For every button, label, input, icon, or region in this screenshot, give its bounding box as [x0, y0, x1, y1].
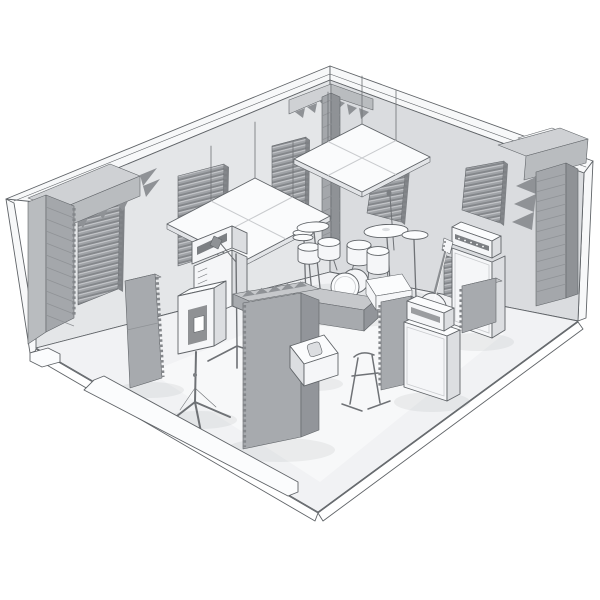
ride-bell [382, 228, 390, 231]
trap-column-side [566, 163, 578, 298]
floor-tom-head [367, 247, 389, 256]
crash-cymbal-2 [402, 231, 428, 240]
speaker-side [214, 281, 226, 346]
pole-knob [193, 373, 197, 377]
rehearsal-room-render: Isometric cutaway 3D render of a soundpr… [0, 0, 600, 600]
snare-head [298, 243, 320, 251]
trap-column-face [536, 163, 566, 306]
cab-front [404, 322, 447, 401]
trap-column-front [28, 195, 46, 344]
gobo-front [125, 274, 162, 388]
rack-tom-2-head [347, 240, 371, 250]
speaker-port [194, 316, 204, 333]
trap-column-side [46, 195, 74, 332]
rack-tom-1-head [318, 238, 340, 247]
hi-hat-cymbals [293, 234, 313, 240]
cab-side [447, 330, 460, 401]
drum-mic [387, 190, 392, 197]
cab-4x12-with-head [404, 296, 460, 401]
speaker-pole [195, 352, 196, 402]
